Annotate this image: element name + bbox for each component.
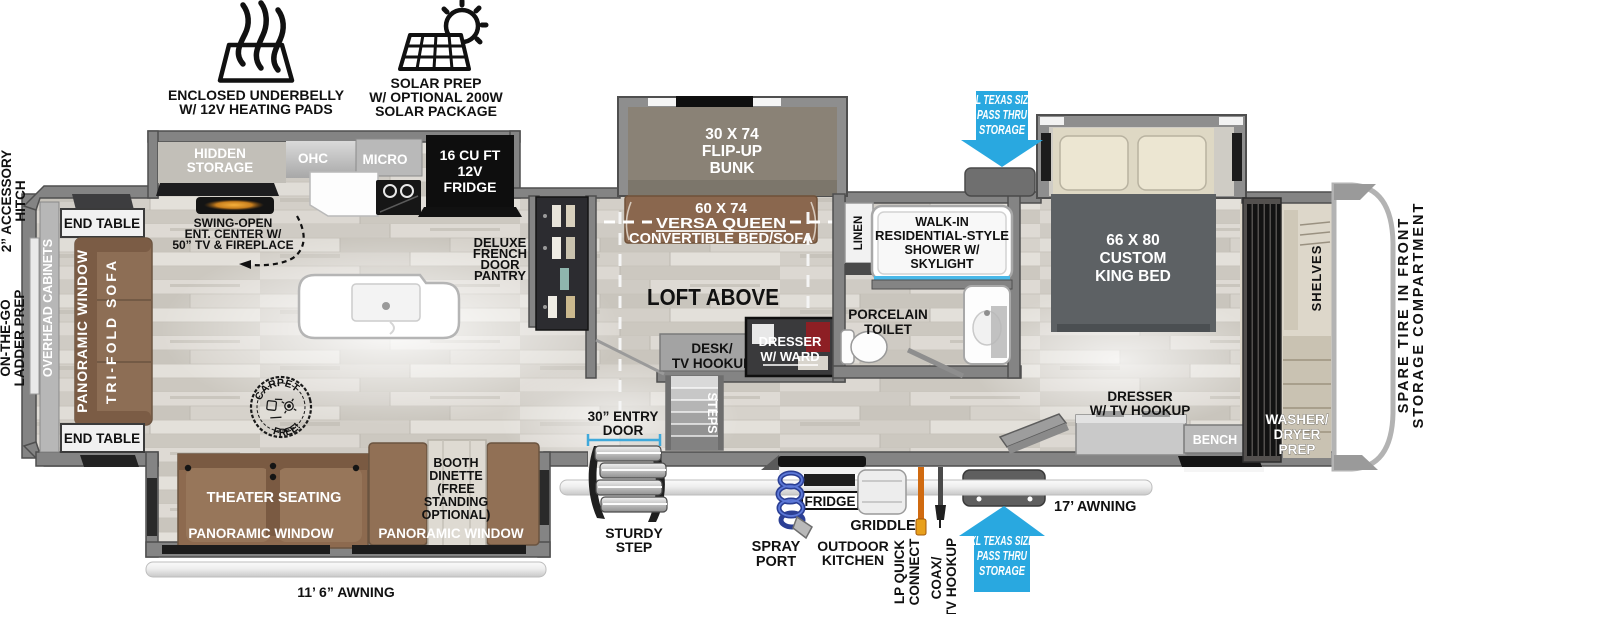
svg-text:XL TEXAS SIZE: XL TEXAS SIZE <box>969 534 1034 548</box>
svg-text:PANORAMIC WINDOW: PANORAMIC WINDOW <box>378 526 523 541</box>
svg-text:STORAGE: STORAGE <box>979 123 1025 137</box>
svg-text:DRYER: DRYER <box>1274 427 1321 442</box>
svg-text:PANTRY: PANTRY <box>474 268 526 283</box>
svg-text:W/ TV HOOKUP: W/ TV HOOKUP <box>1090 403 1191 418</box>
svg-text:THEATER SEATING: THEATER SEATING <box>207 490 342 506</box>
svg-text:END TABLE: END TABLE <box>64 431 140 446</box>
svg-text:17’ AWNING: 17’ AWNING <box>1054 499 1136 515</box>
svg-text:BUNK: BUNK <box>710 160 756 177</box>
svg-text:OHC: OHC <box>298 151 328 166</box>
svg-text:CONNECT: CONNECT <box>907 538 922 606</box>
svg-text:GRIDDLE: GRIDDLE <box>850 518 916 534</box>
svg-text:50” TV & FIREPLACE: 50” TV & FIREPLACE <box>172 238 293 252</box>
svg-text:XL TEXAS SIZE: XL TEXAS SIZE <box>969 93 1034 107</box>
svg-text:PORCELAIN: PORCELAIN <box>848 307 928 322</box>
svg-text:STORAGE COMPARTMENT: STORAGE COMPARTMENT <box>1411 202 1427 429</box>
svg-text:SKYLIGHT: SKYLIGHT <box>910 257 974 271</box>
svg-text:PASS THRU: PASS THRU <box>977 108 1028 122</box>
svg-text:PANORAMIC WINDOW: PANORAMIC WINDOW <box>188 526 333 541</box>
svg-text:SPRAY: SPRAY <box>752 539 801 555</box>
svg-text:STANDING: STANDING <box>424 495 488 509</box>
svg-text:TRI-FOLD SOFA: TRI-FOLD SOFA <box>103 258 119 404</box>
svg-text:SPARE TIRE IN FRONT: SPARE TIRE IN FRONT <box>1396 217 1412 413</box>
svg-text:LOFT ABOVE: LOFT ABOVE <box>647 284 779 310</box>
svg-text:COAX/: COAX/ <box>929 556 944 599</box>
svg-text:LP QUICK: LP QUICK <box>892 540 907 605</box>
svg-text:OVERHEAD CABINETS: OVERHEAD CABINETS <box>41 239 55 377</box>
svg-text:STORAGE: STORAGE <box>187 160 254 175</box>
svg-text:SHELVES: SHELVES <box>1309 245 1324 312</box>
svg-text:PANORAMIC WINDOW: PANORAMIC WINDOW <box>74 249 90 412</box>
svg-text:HITCH: HITCH <box>13 180 28 221</box>
svg-text:16 CU FT: 16 CU FT <box>440 147 501 163</box>
svg-text:OPTIONAL): OPTIONAL) <box>422 508 491 522</box>
svg-text:12V: 12V <box>458 163 484 179</box>
svg-text:END TABLE: END TABLE <box>64 216 140 231</box>
svg-text:CONVERTIBLE BED/SOFA: CONVERTIBLE BED/SOFA <box>629 230 813 247</box>
svg-text:DRESSER: DRESSER <box>759 334 822 349</box>
svg-text:DESK/: DESK/ <box>691 341 733 356</box>
svg-text:LADDER PREP: LADDER PREP <box>12 290 27 387</box>
svg-text:(FREE: (FREE <box>437 482 475 496</box>
svg-text:WASHER/: WASHER/ <box>1265 412 1328 427</box>
svg-text:2” ACCESSORY: 2” ACCESSORY <box>0 150 14 253</box>
svg-text:W/ 12V HEATING PADS: W/ 12V HEATING PADS <box>179 101 333 117</box>
svg-text:BOOTH: BOOTH <box>433 456 478 470</box>
svg-text:DINETTE: DINETTE <box>429 469 482 483</box>
svg-text:RESIDENTIAL-STYLE: RESIDENTIAL-STYLE <box>875 229 1009 243</box>
svg-text:PORT: PORT <box>756 554 796 570</box>
svg-text:TV HOOKUP: TV HOOKUP <box>672 356 752 371</box>
svg-text:PASS THRU: PASS THRU <box>977 549 1028 563</box>
svg-text:CUSTOM: CUSTOM <box>1100 250 1167 267</box>
svg-text:TV HOOKUP: TV HOOKUP <box>944 538 959 614</box>
svg-text:DRESSER: DRESSER <box>1107 389 1173 404</box>
svg-text:HIDDEN: HIDDEN <box>194 146 246 161</box>
svg-text:66 X 80: 66 X 80 <box>1106 232 1159 249</box>
svg-text:STEPS: STEPS <box>705 393 719 434</box>
svg-text:30” ENTRY: 30” ENTRY <box>588 409 659 424</box>
svg-text:STEP: STEP <box>616 539 653 555</box>
svg-text:DOOR: DOOR <box>603 423 644 438</box>
svg-text:W/ WARD: W/ WARD <box>760 349 819 364</box>
svg-text:30 X 74: 30 X 74 <box>705 126 759 143</box>
svg-text:KITCHEN: KITCHEN <box>822 552 884 568</box>
svg-text:11’ 6” AWNING: 11’ 6” AWNING <box>297 584 395 600</box>
svg-text:LINEN: LINEN <box>853 216 865 251</box>
svg-text:SHOWER W/: SHOWER W/ <box>905 243 981 257</box>
svg-text:MICRO: MICRO <box>363 152 408 167</box>
svg-text:BENCH: BENCH <box>1193 433 1237 447</box>
svg-text:SOLAR PACKAGE: SOLAR PACKAGE <box>375 103 497 119</box>
svg-text:WALK-IN: WALK-IN <box>915 215 968 229</box>
svg-text:FRIDGE: FRIDGE <box>444 179 497 195</box>
svg-text:PREP: PREP <box>1279 442 1316 457</box>
svg-text:TOILET: TOILET <box>864 322 913 337</box>
svg-text:KING BED: KING BED <box>1095 268 1171 285</box>
svg-text:FRIDGE: FRIDGE <box>804 494 855 509</box>
svg-text:FLIP-UP: FLIP-UP <box>702 143 762 160</box>
svg-text:STORAGE: STORAGE <box>979 564 1025 578</box>
